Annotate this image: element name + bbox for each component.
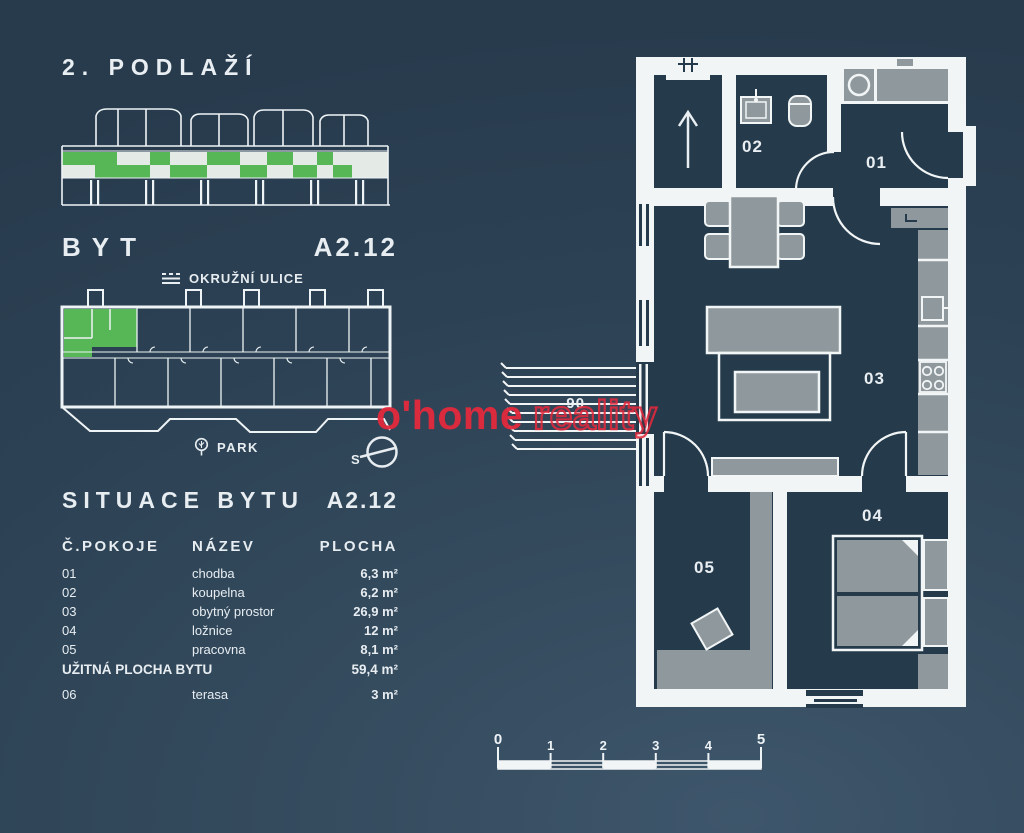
- building-elevation-drawing: [58, 96, 402, 214]
- room-num: 06: [62, 685, 192, 704]
- col-room-no: Č.POKOJE: [62, 538, 192, 555]
- room-name: koupelna: [192, 583, 308, 602]
- room-label-03: 03: [864, 369, 885, 388]
- watermark-brand: o'home: [376, 392, 523, 438]
- table-row: 01 chodba 6,3 m²: [62, 564, 398, 583]
- elevation-columns: [90, 180, 364, 205]
- room-area: 8,1 m²: [308, 640, 398, 659]
- tree-icon: [193, 437, 210, 457]
- bedroom-wardrobe: [918, 654, 948, 689]
- watermark: o'homereality: [376, 392, 657, 439]
- scale-segments: [498, 761, 761, 769]
- table-row: 04 ložnice 12 m²: [62, 621, 398, 640]
- apartment-label: BYT: [62, 232, 147, 263]
- room-label-04: 04: [862, 506, 883, 525]
- table-rows: 01 chodba 6,3 m² 02 koupelna 6,2 m² 03 o…: [62, 564, 398, 704]
- table-row-terrace: 06 terasa 3 m²: [62, 685, 398, 704]
- situation-title: SITUACE BYTU: [62, 487, 304, 514]
- chair: [705, 201, 732, 226]
- total-area: 59,4 m²: [308, 659, 398, 680]
- hall-counter: [877, 69, 948, 101]
- room-area: 12 m²: [308, 621, 398, 640]
- coffee-table: [735, 372, 819, 412]
- highlighted-apartment: [64, 309, 137, 357]
- svg-text:5: 5: [757, 731, 765, 748]
- room-num: 05: [62, 640, 192, 659]
- scale-bar: 0 1 2 3 4 5: [488, 728, 773, 778]
- apartment-code: A2.12: [314, 232, 398, 263]
- radiator: [666, 72, 710, 80]
- col-name: NÁZEV: [192, 538, 308, 555]
- situation-header: SITUACE BYTU A2.12: [62, 487, 398, 514]
- col-area: PLOCHA: [308, 538, 398, 555]
- room-name: terasa: [192, 685, 308, 704]
- room-area: 6,3 m²: [308, 564, 398, 583]
- floor-title: 2. PODLAŽÍ: [62, 54, 259, 81]
- watermark-suffix: reality: [533, 392, 657, 438]
- floorplan-page: 2. PODLAŽÍ: [0, 0, 1024, 833]
- chair: [705, 234, 732, 259]
- room-num: 04: [62, 621, 192, 640]
- table-row: 05 pracovna 8,1 m²: [62, 640, 398, 659]
- park-label-row: PARK: [193, 437, 259, 457]
- room-name: chodba: [192, 564, 308, 583]
- room-area: 26,9 m²: [308, 602, 398, 621]
- total-area-row: UŽITNÁ PLOCHA BYTU 59,4 m²: [62, 659, 398, 680]
- room-name: ložnice: [192, 621, 308, 640]
- svg-text:3: 3: [652, 738, 659, 753]
- wardrobe-column: [750, 492, 772, 689]
- room-num: 01: [62, 564, 192, 583]
- svg-text:4: 4: [705, 738, 713, 753]
- room-num: 03: [62, 602, 192, 621]
- room-area: 6,2 m²: [308, 583, 398, 602]
- room-label-01: 01: [866, 153, 887, 172]
- situation-code: A2.12: [327, 487, 398, 514]
- room-num: 02: [62, 583, 192, 602]
- dining-table: [730, 196, 778, 267]
- elevation-roofs: [96, 109, 368, 146]
- nightstand: [924, 540, 948, 590]
- chair: [777, 234, 804, 259]
- site-balconies: [88, 290, 383, 307]
- svg-text:0: 0: [494, 731, 502, 748]
- compass-north-label: S: [351, 452, 360, 467]
- toilet-icon: [789, 96, 811, 126]
- nightstand: [924, 598, 948, 646]
- scale-numbers: 0 1 2 3 4 5: [494, 731, 765, 753]
- sofa-back: [707, 307, 840, 353]
- hall-storage: [841, 66, 948, 104]
- room-label-05: 05: [694, 558, 715, 577]
- park-label: PARK: [217, 440, 259, 455]
- room-name: obytný prostor: [192, 602, 308, 621]
- sideboard: [712, 458, 838, 476]
- desk: [657, 650, 752, 689]
- svg-text:2: 2: [600, 738, 607, 753]
- room-area: 3 m²: [308, 685, 398, 704]
- site-terrace-edge: [62, 407, 390, 432]
- apartment-header: BYT A2.12: [62, 232, 398, 263]
- room-label-02: 02: [742, 137, 763, 156]
- chair: [777, 201, 804, 226]
- apartment-floorplan: 06: [490, 50, 1010, 730]
- situation-table: SITUACE BYTU A2.12 Č.POKOJE NÁZEV PLOCHA…: [62, 487, 398, 704]
- table-row: 02 koupelna 6,2 m²: [62, 583, 398, 602]
- total-label: UŽITNÁ PLOCHA BYTU: [62, 659, 308, 680]
- table-row: 03 obytný prostor 26,9 m²: [62, 602, 398, 621]
- table-header-row: Č.POKOJE NÁZEV PLOCHA: [62, 538, 398, 555]
- svg-text:1: 1: [547, 738, 554, 753]
- room-name: pracovna: [192, 640, 308, 659]
- elevation-bands: [62, 146, 390, 205]
